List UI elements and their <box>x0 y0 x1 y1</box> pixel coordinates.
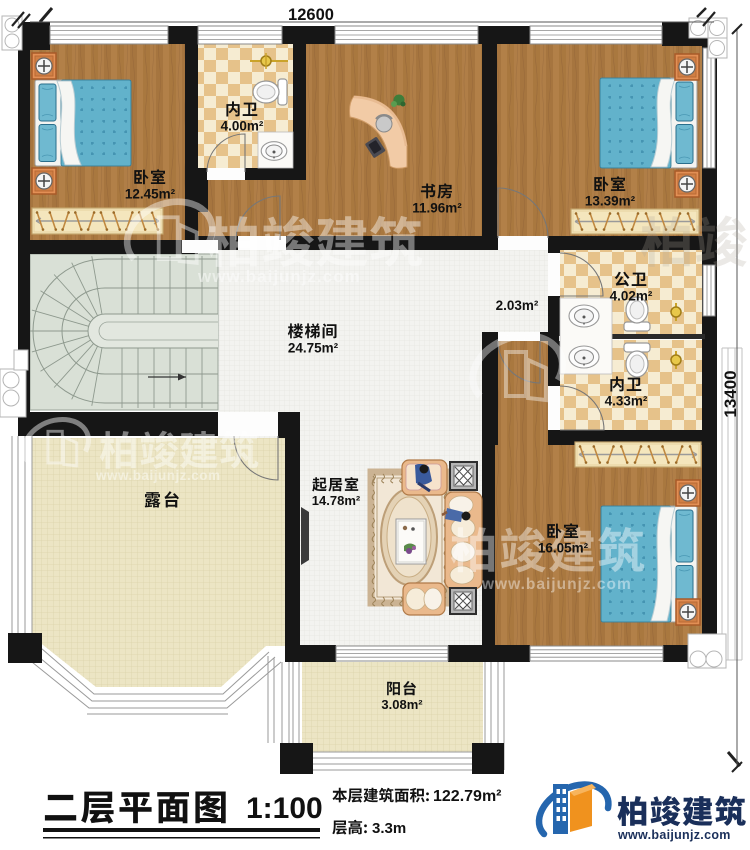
svg-text:4.02m²: 4.02m² <box>610 289 653 304</box>
svg-text:2.03m²: 2.03m² <box>496 298 539 313</box>
svg-text:3.08m²: 3.08m² <box>381 697 423 712</box>
svg-text:12.45m²: 12.45m² <box>125 187 176 202</box>
svg-text:4.33m²: 4.33m² <box>605 394 648 409</box>
svg-text:www.baijunjz.com: www.baijunjz.com <box>197 267 361 286</box>
svg-text:24.75m²: 24.75m² <box>288 341 339 356</box>
svg-text:www.baijunjz.com: www.baijunjz.com <box>95 468 221 483</box>
svg-text:12600: 12600 <box>288 6 334 24</box>
svg-text:www.baijunjz.com: www.baijunjz.com <box>481 576 632 593</box>
svg-text:122.79m²: 122.79m² <box>433 788 502 805</box>
svg-text:14.78m²: 14.78m² <box>312 493 361 508</box>
svg-text:1:100: 1:100 <box>246 792 323 825</box>
svg-text:www.baijunjz.com: www.baijunjz.com <box>617 828 731 842</box>
svg-text:11.96m²: 11.96m² <box>412 201 462 216</box>
svg-text:4.00m²: 4.00m² <box>221 119 264 134</box>
svg-text:3.3m: 3.3m <box>372 820 406 837</box>
svg-text:16.05m²: 16.05m² <box>538 541 589 556</box>
svg-text:13.39m²: 13.39m² <box>585 194 636 209</box>
svg-text:13400: 13400 <box>721 370 740 417</box>
